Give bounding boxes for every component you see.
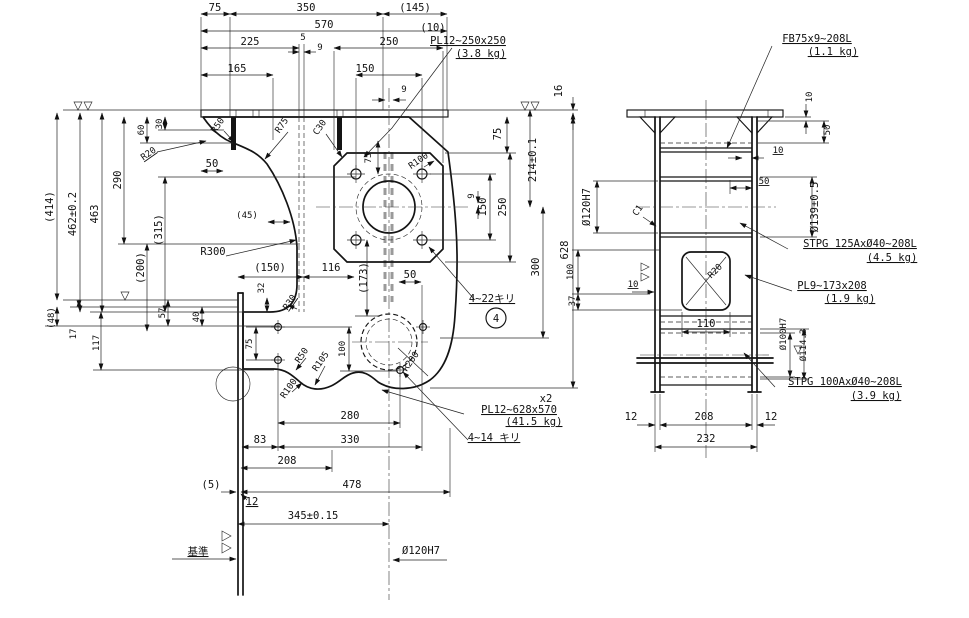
dim-75-oct: 75 <box>364 153 374 164</box>
dim-12-left: 12 <box>625 411 638 423</box>
dim-50-oct: 50 <box>404 269 417 281</box>
side-dimensions <box>572 46 829 452</box>
dim-117: 117 <box>92 335 102 351</box>
rad-r20-side: R20 <box>706 262 725 281</box>
dim-32: 32 <box>257 283 267 294</box>
cham-c1: C1 <box>631 204 645 219</box>
dim-40: 40 <box>192 312 202 323</box>
callout-pl250-weight: (3.8 kg) <box>456 48 507 60</box>
callout-stpg125-weight: (4.5 kg) <box>867 252 918 264</box>
dim-208-front: 208 <box>278 455 297 467</box>
dia-114: Ø114.3 <box>798 329 809 362</box>
dim-315: (315) <box>153 214 165 246</box>
dim-10-fb-v: 10 <box>805 92 815 103</box>
finish-mark-icon <box>74 102 539 553</box>
callout-stpg100: STPG 100AxØ40~208L <box>788 376 902 388</box>
callout-pl628: PL12~628x570 <box>481 404 557 416</box>
dim-628: 628 <box>559 241 571 260</box>
dim-173: (173) <box>358 262 370 294</box>
dim-250-vert: 250 <box>497 198 509 217</box>
dim-232: 232 <box>697 433 716 445</box>
rad-r50-top: R50 <box>210 116 228 135</box>
dia-120-front: Ø120H7 <box>402 545 440 557</box>
dim-116: 116 <box>322 262 341 274</box>
cad-drawing-canvas: 75 350 (145) 570 225 5 9 250 165 150 9 1… <box>0 0 969 618</box>
dim-165: 165 <box>228 63 247 75</box>
rad-r20: R20 <box>139 146 158 164</box>
rib-section <box>337 117 342 150</box>
dim-100-holes: 100 <box>338 341 348 357</box>
dim-570: 570 <box>315 19 334 31</box>
dim-12-right: 12 <box>765 411 778 423</box>
dim-83: 83 <box>254 434 267 446</box>
dim-100-side: 100 <box>566 264 576 280</box>
dim-10-side: 10 <box>628 280 639 290</box>
rad-r30: R30 <box>282 293 300 312</box>
dim-16: 16 <box>553 85 565 98</box>
dim-280: 280 <box>341 410 360 422</box>
dim-45: (45) <box>236 211 258 221</box>
dim-110: 110 <box>697 318 716 330</box>
cad-drawing-page: 75 350 (145) 570 225 5 9 250 165 150 9 1… <box>0 0 969 618</box>
rad-r100-low: R100 <box>279 377 300 401</box>
octagon-plate <box>334 153 443 262</box>
dim-75-top: 75 <box>209 2 222 14</box>
callout-stpg100-weight: (3.9 kg) <box>851 390 902 402</box>
callout-stpg125: STPG 125AxØ40~208L <box>803 238 917 250</box>
dim-37: 37 <box>568 296 578 307</box>
dim-345: 345±0.15 <box>288 510 339 522</box>
dim-145: (145) <box>399 2 431 14</box>
dim-50-left: 50 <box>206 158 219 170</box>
side-view <box>627 100 783 458</box>
dim-60: 60 <box>137 125 147 136</box>
dia-100: Ø100H7 <box>778 318 789 351</box>
callout-pl250: PL12~250x250 <box>430 35 506 47</box>
datum-label: 基準 <box>188 545 209 558</box>
dim-300: 300 <box>530 258 542 277</box>
dim-350: 350 <box>297 2 316 14</box>
dim-214: 214±0.1 <box>527 138 539 182</box>
callout-pl9: PL9~173x208 <box>797 280 867 292</box>
callout-drill14: 4~14 キリ <box>468 432 521 444</box>
dim-12-front: 12 <box>246 496 259 508</box>
dim-75-right: 75 <box>492 128 504 141</box>
dim-75-holes: 75 <box>245 339 255 350</box>
dim-200: (200) <box>135 252 147 284</box>
callout-pl9-weight: (1.9 kg) <box>825 293 876 305</box>
front-dimensions <box>45 14 578 560</box>
labels: 75 350 (145) 570 225 5 9 250 165 150 9 1… <box>44 2 917 558</box>
dim-48: (48) <box>47 307 57 329</box>
dim-57: 57 <box>158 308 168 319</box>
callout-pl628-weight: (41.5 kg) <box>506 416 563 428</box>
finish-mark-icon <box>641 263 802 354</box>
dim-30: 30 <box>155 119 165 130</box>
dia-120-side: Ø120H7 <box>581 188 593 226</box>
detail-circle <box>216 367 250 401</box>
perpendicular-plate-edge <box>238 293 243 595</box>
dim-225: 225 <box>241 36 260 48</box>
front-view <box>201 88 470 600</box>
rad-r105: R105 <box>311 350 332 374</box>
callout-qty10: (10) <box>420 22 445 34</box>
dim-330: 330 <box>341 434 360 446</box>
dim-478: 478 <box>343 479 362 491</box>
rib-section <box>231 117 236 150</box>
balloon-4: 4 <box>493 313 499 325</box>
dim-150-mid: (150) <box>254 262 286 274</box>
rad-r300: R300 <box>200 246 225 258</box>
dim-5-top: 5 <box>300 33 305 43</box>
callout-drill22: 4~22キリ <box>469 293 515 305</box>
top-flange-plate <box>201 110 448 117</box>
dim-414: (414) <box>44 191 56 223</box>
dim-150-vert: 150 <box>477 198 489 217</box>
callout-fb75-weight: (1.1 kg) <box>808 46 859 58</box>
dim-150-top: 150 <box>356 63 375 75</box>
dim-17: 17 <box>69 329 79 340</box>
dim-50-fb-v: 50 <box>823 125 833 136</box>
rad-r75: R75 <box>274 116 292 135</box>
dim-10-fb-h: 10 <box>773 146 784 156</box>
dim-208-side: 208 <box>695 411 714 423</box>
dim-290: 290 <box>112 171 124 190</box>
dim-463: 463 <box>89 205 101 224</box>
dim-462: 462±0.2 <box>67 192 79 236</box>
dim-5-bottom: (5) <box>202 479 221 491</box>
dim-9-right: 9 <box>467 193 477 198</box>
rad-r100-oct: R100 <box>407 151 431 172</box>
rad-r50-low: R50 <box>294 346 312 365</box>
dim-9-oct: 9 <box>401 85 406 95</box>
callout-fb75: FB75x9~208L <box>782 33 852 45</box>
dim-9-top: 9 <box>317 43 322 53</box>
dim-50-fb-h: 50 <box>759 177 770 187</box>
dia-139: Ø139±0.5 <box>809 182 821 233</box>
side-top-flange <box>627 110 783 117</box>
dim-250-top: 250 <box>380 36 399 48</box>
